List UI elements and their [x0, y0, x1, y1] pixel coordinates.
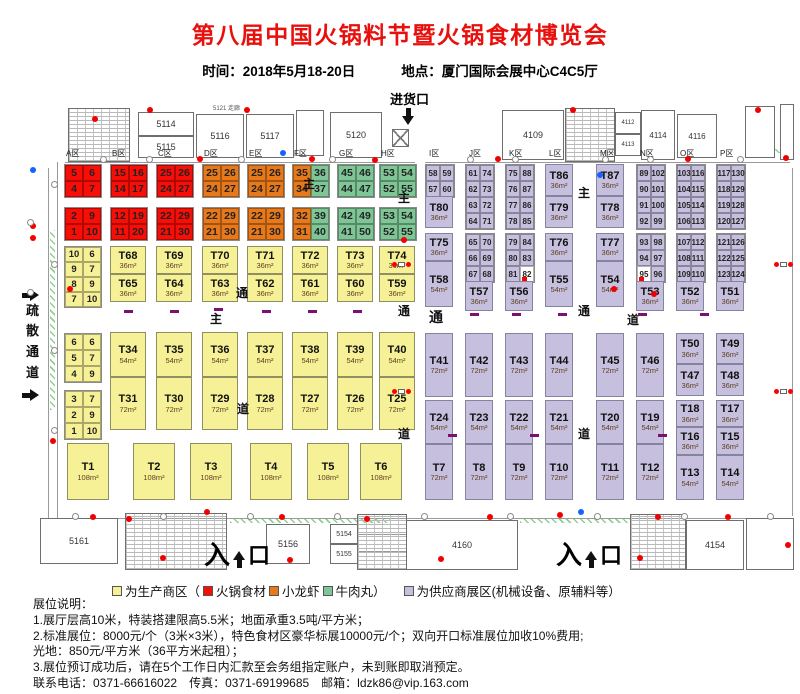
block-A2: 29110: [64, 207, 102, 241]
red-dot: [487, 514, 493, 520]
block-G1: 45464447: [337, 164, 375, 198]
booth-68: 68: [480, 266, 494, 282]
booth-area: 36m²: [601, 249, 618, 257]
aisle-label: 主: [578, 187, 590, 199]
room-5161: 5161: [40, 518, 118, 564]
booth-102: 102: [651, 165, 665, 181]
booth-22: 22: [157, 208, 175, 224]
zone-label-G区: G区: [339, 150, 353, 158]
red-dot: [611, 286, 617, 292]
booth-T25: T2572m²: [379, 377, 415, 430]
booth-area: 36m²: [721, 298, 738, 306]
aisle-label: 道: [237, 403, 249, 415]
booth-T22: T2254m²: [505, 400, 533, 444]
door-dash: [558, 313, 567, 316]
booth-T69: T6936m²: [156, 246, 192, 274]
booth-50: 50: [356, 224, 374, 240]
booth-54: 54: [398, 165, 416, 181]
booth-T10: T1072m²: [545, 444, 573, 500]
booth-T62: T6236m²: [247, 274, 283, 302]
booth-116: 116: [691, 165, 705, 181]
booth-22: 22: [248, 208, 266, 224]
red-dot: [160, 555, 166, 561]
booth-7: 7: [83, 181, 101, 197]
arrow-head: [585, 551, 597, 560]
booth-91: 91: [637, 197, 651, 213]
booth-94: 94: [637, 250, 651, 266]
booth-T37: T3754m²: [247, 332, 283, 377]
aisle-label: 主: [398, 192, 410, 204]
booth-area: 72m²: [510, 367, 527, 375]
red-dot: [783, 155, 789, 161]
door-dash: [353, 310, 362, 313]
arrow-down-icon: [402, 108, 414, 125]
booth-9: 9: [65, 262, 83, 277]
booth-T79: T7936m²: [545, 196, 573, 228]
booth-area: 54m²: [470, 424, 487, 432]
note-line: 光地：850元/平方米（36平方米起租）；: [33, 644, 583, 660]
booth-30: 30: [266, 224, 284, 240]
zone-label-C区: C区: [158, 150, 172, 158]
booth-id: T25: [388, 393, 407, 406]
booth-20: 20: [129, 224, 147, 240]
evacuation-label: 通: [26, 345, 39, 358]
red-dot: [637, 555, 643, 561]
room-4160: 4160: [406, 520, 518, 570]
booth-86: 86: [520, 197, 534, 213]
booth-25: 25: [157, 165, 175, 181]
booth-T49: T4936m²: [716, 333, 744, 364]
door-dash: [262, 310, 271, 313]
booth-123: 123: [717, 266, 731, 282]
booth-id: T36: [211, 344, 230, 357]
booth-113: 113: [691, 213, 705, 229]
booth-area: 54m²: [346, 357, 363, 365]
zone-label-I区: I区: [429, 150, 439, 158]
booth-area: 36m²: [681, 298, 698, 306]
booth-98: 98: [651, 234, 665, 250]
booth-area: 72m²: [601, 367, 618, 375]
booth-125: 125: [731, 250, 745, 266]
note-line: 1.展厅层高10米，特装搭建限高5.5米；地面承重3.5吨/平方米；: [33, 613, 583, 629]
block-miniA1: 1069789710: [64, 246, 102, 308]
booth-area: 108m²: [77, 474, 98, 482]
booth-107: 107: [677, 234, 691, 250]
red-dot: [309, 156, 315, 162]
booth-area: 72m²: [256, 406, 273, 414]
wall-segment: [792, 168, 793, 516]
booth-id: T14: [721, 467, 740, 480]
booth-id: T17: [721, 403, 740, 416]
booth-14: 14: [111, 181, 129, 197]
booth-7: 7: [83, 350, 101, 366]
booth-T68: T6836m²: [110, 246, 146, 274]
blue-dot: [30, 167, 36, 173]
booth-area: 36m²: [550, 249, 567, 257]
wall-marker-part: [780, 262, 787, 267]
booth-88: 88: [520, 165, 534, 181]
zone-label-P区: P区: [720, 150, 733, 158]
booth-id: T50: [681, 338, 700, 351]
booth-T5: T5108m²: [307, 443, 349, 500]
red-dot: [287, 557, 293, 563]
booth-115: 115: [691, 181, 705, 197]
room: [392, 129, 409, 147]
corridor-note: 5121 走廊: [213, 106, 240, 112]
column-circle: [247, 513, 254, 520]
column-circle: [602, 156, 609, 163]
booth-area: 36m²: [388, 290, 405, 298]
booth-id: T26: [346, 393, 365, 406]
booth-area: 72m²: [470, 474, 487, 482]
zone-label-L区: L区: [549, 150, 561, 158]
booth-T78: T7836m²: [596, 196, 624, 228]
booth-82: 82: [520, 266, 534, 282]
booth-area: 36m²: [721, 443, 738, 451]
room-5114: 5114: [138, 112, 194, 136]
booth-T38: T3854m²: [292, 332, 328, 377]
arrow-up-icon: [583, 551, 599, 568]
booth-area: 54m²: [510, 424, 527, 432]
booth-1: 1: [65, 423, 83, 439]
booth-75: 75: [506, 165, 520, 181]
booth-104: 104: [677, 181, 691, 197]
red-dot: [204, 509, 210, 515]
booth-53: 53: [380, 165, 398, 181]
booth-9: 9: [83, 208, 101, 224]
booth-31: 31: [293, 224, 311, 240]
block-Itop: 58595760: [425, 164, 455, 198]
door-dash: [658, 434, 667, 437]
red-dot: [655, 514, 661, 520]
booth-4: 4: [65, 181, 83, 197]
booth-92: 92: [637, 213, 651, 229]
booth-area: 54m²: [301, 357, 318, 365]
escape-route-zigzag: [520, 519, 632, 523]
red-dot: [279, 514, 285, 520]
booth-T27: T2772m²: [292, 377, 328, 430]
column-circle: [681, 513, 688, 520]
booth-60: 60: [440, 181, 454, 197]
booth-27: 27: [266, 181, 284, 197]
column-circle: [160, 513, 167, 520]
booth-id: T18: [681, 403, 700, 416]
wall-marker-part: [780, 389, 787, 394]
wall-marker-part: [774, 262, 779, 267]
booth-84: 84: [520, 234, 534, 250]
door-dash: [530, 434, 539, 437]
note-line: 联系电话：0371-66616022 传真：0371-69199685 邮箱：l…: [33, 676, 583, 692]
booth-T58: T5854m²: [425, 261, 453, 307]
booth-area: 72m²: [346, 406, 363, 414]
red-dot: [685, 156, 691, 162]
blue-dot: [578, 509, 584, 515]
escape-route-zigzag: [50, 230, 55, 410]
booth-T44: T4472m²: [545, 333, 573, 397]
column-circle: [51, 261, 58, 268]
wall-segment: [48, 168, 49, 518]
booth-area: 36m²: [211, 262, 228, 270]
red-dot: [785, 542, 791, 548]
booth-17: 17: [129, 181, 147, 197]
booth-T39: T3954m²: [337, 332, 373, 377]
booth-id: T38: [301, 344, 320, 357]
booth-T51: T5136m²: [716, 281, 744, 311]
red-dot: [651, 291, 657, 297]
booth-area: 36m²: [119, 262, 136, 270]
booth-10: 10: [83, 423, 101, 439]
red-dot: [725, 514, 731, 520]
booth-area: 36m²: [430, 214, 447, 222]
booth-85: 85: [520, 213, 534, 229]
booth-39: 39: [311, 208, 329, 224]
red-dot: [557, 512, 563, 518]
booth-T48: T4836m²: [716, 364, 744, 396]
red-dot: [495, 156, 501, 162]
door-dash: [170, 310, 179, 313]
block-A1: 5647: [64, 164, 102, 198]
block-miniA2: 665749: [64, 333, 102, 383]
red-dot: [30, 235, 36, 241]
booth-21: 21: [203, 224, 221, 240]
booth-130: 130: [731, 165, 745, 181]
booth-6: 6: [83, 334, 101, 350]
column-circle: [146, 156, 153, 163]
booth-7: 7: [83, 262, 101, 277]
red-dot: [126, 516, 132, 522]
booth-106: 106: [677, 213, 691, 229]
booth-area: 108m²: [200, 474, 221, 482]
door-dash: [308, 310, 317, 313]
booth-T42: T4272m²: [465, 333, 493, 397]
block-Ktop: 7588768777867885: [505, 164, 535, 230]
booth-66: 66: [466, 250, 480, 266]
booth-67: 67: [466, 266, 480, 282]
booth-105: 105: [677, 197, 691, 213]
entrance-char: 口: [600, 545, 622, 567]
booth-id: T49: [721, 338, 740, 351]
booth-id: T2: [148, 461, 161, 474]
booth-7: 7: [83, 391, 101, 407]
booth-126: 126: [731, 234, 745, 250]
booth-area: 108m²: [143, 474, 164, 482]
booth-area: 36m²: [165, 290, 182, 298]
booth-114: 114: [691, 197, 705, 213]
booth-area: 54m²: [165, 357, 182, 365]
entrance-label: 入口: [204, 542, 270, 568]
booth-T57: T5736m²: [465, 281, 493, 311]
door-dash: [700, 313, 709, 316]
booth-T3: T3108m²: [190, 443, 232, 500]
arrow-up-icon: [231, 551, 247, 568]
door-dash: [124, 310, 133, 313]
column-circle: [594, 513, 601, 520]
wall-marker: [392, 262, 411, 267]
booth-area: 72m²: [388, 406, 405, 414]
booth-2: 2: [65, 208, 83, 224]
booth-T47: T4736m²: [676, 364, 704, 396]
wall-marker: [774, 389, 793, 394]
block-B2: 12191120: [110, 207, 148, 241]
booth-99: 99: [651, 213, 665, 229]
booth-area: 54m²: [119, 357, 136, 365]
booth-id: T31: [119, 393, 138, 406]
booth-119: 119: [717, 197, 731, 213]
arrow-head: [402, 116, 414, 125]
booth-120: 120: [717, 213, 731, 229]
note-line: 2.标准展位：8000元/个（3米×3米），特色食材区豪华标展10000元/个；…: [33, 629, 583, 645]
booth-area: 36m²: [301, 262, 318, 270]
booth-area: 54m²: [550, 286, 567, 294]
booth-T54: T5454m²: [596, 261, 624, 307]
booth-area: 36m²: [256, 262, 273, 270]
room-4113: 4113: [615, 134, 641, 156]
booth-T20: T2054m²: [596, 400, 624, 444]
booth-128: 128: [731, 197, 745, 213]
booth-4: 4: [65, 366, 83, 382]
booth-area: 54m²: [430, 286, 447, 294]
booth-79: 79: [506, 234, 520, 250]
booth-T80: T8036m²: [425, 196, 453, 228]
booth-62: 62: [466, 181, 480, 197]
booth-T1: T1108m²: [67, 443, 109, 500]
aisle-label: 通: [236, 287, 248, 299]
booth-T56: T5636m²: [505, 281, 533, 311]
booth-T28: T2872m²: [247, 377, 283, 430]
booth-32: 32: [293, 208, 311, 224]
arrow-stem: [589, 560, 594, 568]
booth-T65: T6536m²: [110, 274, 146, 302]
room-5154: 5154: [330, 524, 358, 544]
zone-label-D区: D区: [204, 150, 218, 158]
booth-10: 10: [65, 247, 83, 262]
room-5120: 5120: [330, 112, 382, 158]
booth-area: 36m²: [601, 182, 618, 190]
zone-label-B区: B区: [112, 150, 125, 158]
room: [780, 104, 794, 160]
block-H2: 53545255: [379, 207, 417, 241]
booth-T87: T8736m²: [596, 164, 624, 196]
booth-area: 54m²: [388, 357, 405, 365]
column-circle: [737, 156, 744, 163]
booth-T7: T772m²: [425, 444, 453, 500]
loading-entrance-label: 进货口: [390, 93, 429, 106]
booth-T24: T2454m²: [425, 400, 453, 444]
booth-id: T35: [165, 344, 184, 357]
booth-47: 47: [356, 181, 374, 197]
booth-area: 36m²: [550, 214, 567, 222]
red-dot: [401, 237, 407, 243]
booth-T53: T5336m²: [636, 281, 664, 311]
booth-5: 5: [65, 165, 83, 181]
booth-21: 21: [157, 224, 175, 240]
booth-76: 76: [506, 181, 520, 197]
red-dot: [197, 156, 203, 162]
booth-T16: T1636m²: [676, 427, 704, 455]
booth-T30: T3072m²: [156, 377, 192, 430]
booth-27: 27: [221, 181, 239, 197]
booth-100: 100: [651, 197, 665, 213]
booth-6: 6: [65, 334, 83, 350]
booth-T11: T1172m²: [596, 444, 624, 500]
booth-area: 36m²: [550, 182, 567, 190]
red-dot: [50, 438, 56, 444]
booth-area: 72m²: [470, 367, 487, 375]
booth-area: 54m²: [721, 480, 738, 488]
booth-area: 36m²: [430, 249, 447, 257]
booth-T14: T1454m²: [716, 455, 744, 500]
booth-T26: T2672m²: [337, 377, 373, 430]
booth-area: 72m²: [119, 406, 136, 414]
booth-97: 97: [651, 250, 665, 266]
booth-T73: T7336m²: [337, 246, 373, 274]
block-D1: 25262427: [202, 164, 240, 198]
wall-marker: [774, 262, 793, 267]
booth-T21: T2154m²: [545, 400, 573, 444]
booth-area: 108m²: [260, 474, 281, 482]
wall-marker-part: [398, 389, 405, 394]
aisle-label: 主: [210, 313, 222, 325]
booth-T19: T1954m²: [636, 400, 664, 444]
wall-marker: [392, 389, 411, 394]
booth-81: 81: [506, 266, 520, 282]
booth-T36: T3654m²: [202, 332, 238, 377]
floor-plan: 5114511551165117512041094112411341144116…: [0, 0, 800, 694]
booth-22: 22: [203, 208, 221, 224]
booth-89: 89: [637, 165, 651, 181]
booth-T12: T1272m²: [636, 444, 664, 500]
booth-70: 70: [480, 234, 494, 250]
aisle-label: 通: [429, 310, 443, 324]
red-dot: [570, 107, 576, 113]
booth-T46: T4672m²: [636, 333, 664, 397]
booth-area: 108m²: [370, 474, 391, 482]
booth-area: 36m²: [721, 416, 738, 424]
booth-id: T30: [165, 393, 184, 406]
booth-area: 36m²: [721, 351, 738, 359]
booth-area: 72m²: [430, 474, 447, 482]
booth-area: 36m²: [301, 290, 318, 298]
booth-53: 53: [380, 208, 398, 224]
booth-57: 57: [426, 181, 440, 197]
column-circle: [329, 156, 336, 163]
booth-9: 9: [83, 366, 101, 382]
booth-63: 63: [466, 197, 480, 213]
booth-87: 87: [520, 181, 534, 197]
column-circle: [51, 427, 58, 434]
entrance-char: 入: [204, 542, 230, 568]
booth-area: 54m²: [641, 424, 658, 432]
block-Jmid: 657066696768: [465, 233, 495, 283]
red-dot: [755, 107, 761, 113]
booth-61: 61: [466, 165, 480, 181]
booth-id: T29: [211, 393, 230, 406]
booth-12: 12: [111, 208, 129, 224]
booth-26: 26: [266, 165, 284, 181]
wall-marker-part: [392, 262, 397, 267]
entrance-char: 入: [556, 542, 582, 568]
booth-T15: T1536m²: [716, 427, 744, 455]
booth-58: 58: [426, 165, 440, 181]
booth-T45: T4572m²: [596, 333, 624, 397]
legend-swatch: [269, 586, 279, 596]
entrance-label: 入口: [556, 542, 622, 568]
booth-9: 9: [83, 277, 101, 292]
aisle-label: 通: [398, 305, 410, 317]
booth-T31: T3172m²: [110, 377, 146, 430]
wall-segment: [57, 162, 58, 518]
booth-90: 90: [637, 181, 651, 197]
